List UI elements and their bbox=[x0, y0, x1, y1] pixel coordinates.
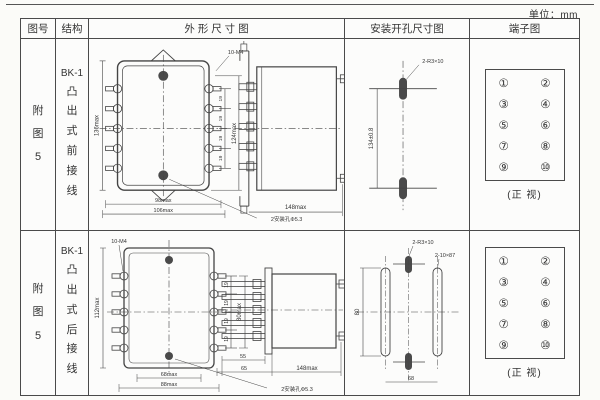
terminal-3: ③ bbox=[499, 275, 509, 289]
terminal-9: ⑨ bbox=[499, 338, 509, 352]
dim-height-left: 136max bbox=[94, 115, 100, 136]
row2-terminal-cell: ① ③ ⑤ ⑦ ⑨ ② ④ ⑥ ⑧ ⑩ (正 视) bbox=[470, 231, 579, 395]
header-fig-no: 图号 bbox=[21, 19, 56, 39]
long-slot-spec-label: 2-10×87 bbox=[434, 253, 454, 259]
terminal-7: ⑦ bbox=[499, 139, 509, 153]
dim-side-width: 148max bbox=[296, 366, 317, 372]
row1-outline-drawing: 136max 19 19 19 19 124max 10-M4 98max 10… bbox=[89, 39, 345, 230]
terminal-6: ⑥ bbox=[540, 296, 550, 310]
terminal-4: ④ bbox=[540, 97, 550, 111]
terminal-3: ③ bbox=[499, 97, 509, 111]
mount-hole-note: 2安装孔Φ5.3 bbox=[281, 385, 313, 393]
terminal-7: ⑦ bbox=[499, 317, 509, 331]
terminal-2: ② bbox=[540, 76, 550, 90]
row2-structure-cell: BK-1 凸出式后接线 bbox=[56, 231, 89, 395]
dim-slot-spacing: 68 bbox=[407, 376, 413, 382]
screw-spec-label: 10-M4 bbox=[111, 239, 127, 245]
dim-width-inner: 68max bbox=[160, 372, 177, 378]
terminal-6: ⑥ bbox=[540, 118, 550, 132]
row1-terminal-caption: (正 视) bbox=[507, 186, 541, 201]
dim-pitch: 19 bbox=[224, 300, 230, 306]
row1-mounting-drawing: 134±0.8 2-R3×10 bbox=[345, 39, 470, 230]
header-outline-dims: 外 形 尺 寸 图 bbox=[89, 19, 345, 39]
row1-terminal-diagram: ① ③ ⑤ ⑦ ⑨ ② ④ ⑥ ⑧ ⑩ bbox=[485, 69, 565, 181]
row1-terminal-cell: ① ③ ⑤ ⑦ ⑨ ② ④ ⑥ ⑧ ⑩ (正 视) bbox=[470, 39, 579, 231]
row1-side-view: 148max bbox=[234, 41, 344, 216]
row2-terminal-caption: (正 视) bbox=[507, 364, 541, 379]
row1-structure-cell: BK-1 凸出式前接线 bbox=[56, 39, 89, 231]
row1-structure: 凸出式前接线 bbox=[66, 83, 79, 202]
row2-terminal-diagram: ① ③ ⑤ ⑦ ⑨ ② ④ ⑥ ⑧ ⑩ bbox=[485, 247, 565, 359]
dim-height-right: 124max bbox=[231, 123, 237, 144]
dim-stud-length: 55 bbox=[239, 354, 245, 360]
dim-pitch: 19 bbox=[224, 282, 230, 288]
drawing-table: 图号 结构 外 形 尺 寸 图 安装开孔尺寸图 端子图 附图5 BK-1 凸出式… bbox=[20, 18, 580, 396]
header-structure: 结构 bbox=[56, 19, 89, 39]
header-mounting-holes: 安装开孔尺寸图 bbox=[345, 19, 470, 39]
terminal-8: ⑧ bbox=[540, 139, 550, 153]
side-terminals bbox=[238, 82, 256, 171]
dim-hole-spacing: 134±0.8 bbox=[369, 127, 375, 149]
row1-model: BK-1 bbox=[61, 68, 83, 79]
datasheet-page: { "unit_label": "单位：mm", "headers": { "f… bbox=[0, 0, 600, 400]
row2-model: BK-1 bbox=[61, 246, 83, 257]
row2-outline-cell: 112max 10-M4 19 19 19 19 80max 68max 88m… bbox=[89, 231, 345, 395]
dim-height-right: 80max bbox=[237, 302, 243, 320]
dim-slot-height: 80 bbox=[355, 308, 361, 315]
header-terminal-diagram: 端子图 bbox=[470, 19, 579, 39]
row1-fig-no-cell: 附图5 bbox=[21, 39, 56, 231]
row1-outline-cell: 136max 19 19 19 19 124max 10-M4 98max 10… bbox=[89, 39, 345, 231]
row2-mounting-drawing: 80 68 2-R3×10 2-10×87 bbox=[345, 232, 470, 395]
small-slot-spec-label: 2-R3×10 bbox=[412, 240, 433, 246]
row2-outline-drawing: 112max 10-M4 19 19 19 19 80max 68max 88m… bbox=[89, 232, 345, 395]
terminal-right-column: ② ④ ⑥ ⑧ ⑩ bbox=[540, 254, 550, 352]
dim-width-outer: 88max bbox=[160, 382, 177, 388]
dim-pitch: 19 bbox=[217, 116, 223, 122]
terminal-left-column: ① ③ ⑤ ⑦ ⑨ bbox=[499, 76, 509, 174]
row2-mounting-cell: 80 68 2-R3×10 2-10×87 bbox=[345, 231, 470, 395]
mount-hole-note: 2安装孔Φ5.3 bbox=[270, 215, 301, 223]
terminal-2: ② bbox=[540, 254, 550, 268]
terminal-1: ① bbox=[499, 254, 509, 268]
terminal-left-column: ① ③ ⑤ ⑦ ⑨ bbox=[499, 254, 509, 352]
terminal-9: ⑨ bbox=[499, 160, 509, 174]
terminal-5: ⑤ bbox=[499, 118, 509, 132]
terminal-1: ① bbox=[499, 76, 509, 90]
terminal-5: ⑤ bbox=[499, 296, 509, 310]
dim-height-left: 112max bbox=[95, 297, 101, 318]
row1-mounting-cell: 134±0.8 2-R3×10 bbox=[345, 39, 470, 231]
terminal-4: ④ bbox=[540, 275, 550, 289]
dim-pitch: 19 bbox=[217, 135, 223, 141]
dim-pitch: 19 bbox=[217, 155, 223, 161]
terminal-10: ⑩ bbox=[540, 338, 550, 352]
dim-stud-total: 65 bbox=[240, 366, 246, 372]
slot-spec-label: 2-R3×10 bbox=[422, 59, 443, 65]
dim-width-outer: 106max bbox=[153, 208, 173, 214]
row2-fig-no-cell: 附图5 bbox=[21, 231, 56, 395]
dim-side-width: 148max bbox=[284, 205, 305, 211]
page-top-rule bbox=[6, 4, 594, 5]
dim-width-inner: 98max bbox=[155, 198, 172, 204]
row2-front-view: 112max 10-M4 19 19 19 19 80max 68max 88m… bbox=[95, 239, 313, 393]
terminal-8: ⑧ bbox=[540, 317, 550, 331]
row1-fig-no: 附图5 bbox=[32, 100, 45, 169]
row2-fig-no: 附图5 bbox=[32, 278, 45, 347]
terminal-right-column: ② ④ ⑥ ⑧ ⑩ bbox=[540, 76, 550, 174]
dim-pitch: 19 bbox=[217, 96, 223, 102]
terminal-10: ⑩ bbox=[540, 160, 550, 174]
row2-structure: 凸出式后接线 bbox=[66, 261, 79, 380]
row1-front-view: 136max 19 19 19 19 124max 10-M4 98max 10… bbox=[94, 50, 302, 223]
